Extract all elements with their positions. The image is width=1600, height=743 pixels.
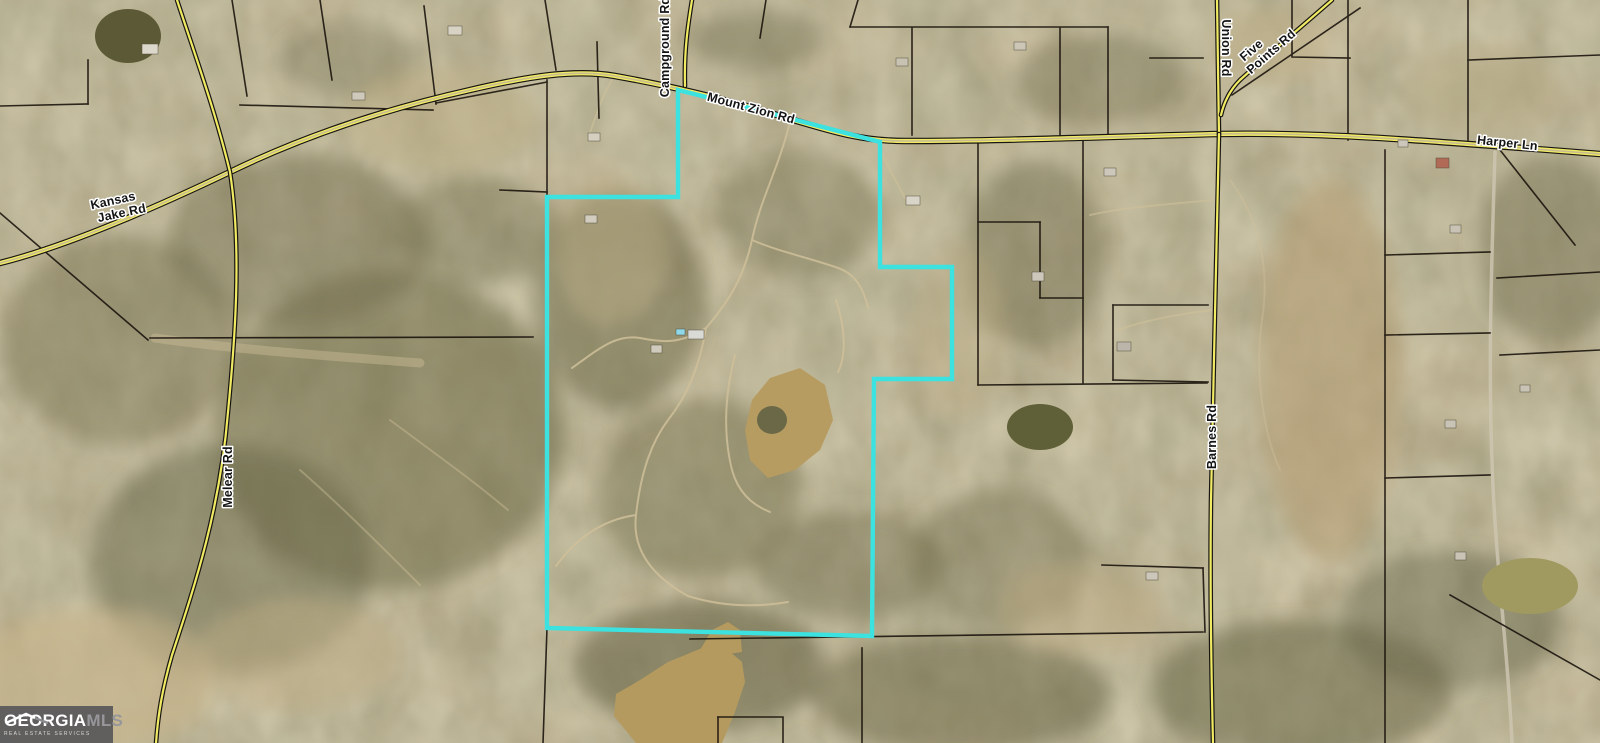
pond-top-left [95, 9, 161, 63]
logo-tagline: REAL ESTATE SERVICES [4, 731, 113, 737]
label-campground-rd: Campground Rd [658, 0, 672, 97]
map-canvas: Mount Zion Rd Campground Rd Union Rd Fiv… [0, 0, 1600, 743]
pond-bottom-right [1482, 558, 1578, 614]
label-barnes-rd: Barnes Rd [1205, 405, 1219, 469]
roof-icon [4, 712, 50, 724]
road-union [1217, 0, 1219, 134]
pond-right [1007, 404, 1073, 450]
pond-island [757, 406, 787, 434]
label-union-rd: Union Rd [1219, 19, 1233, 76]
satellite-map: Mount Zion Rd Campground Rd Union Rd Fiv… [0, 0, 1600, 743]
georgia-mls-logo: GEORGIAMLS REAL ESTATE SERVICES [0, 706, 113, 743]
logo-brand-secondary: MLS [86, 712, 123, 729]
label-melear-rd: Melear Rd [221, 446, 235, 508]
